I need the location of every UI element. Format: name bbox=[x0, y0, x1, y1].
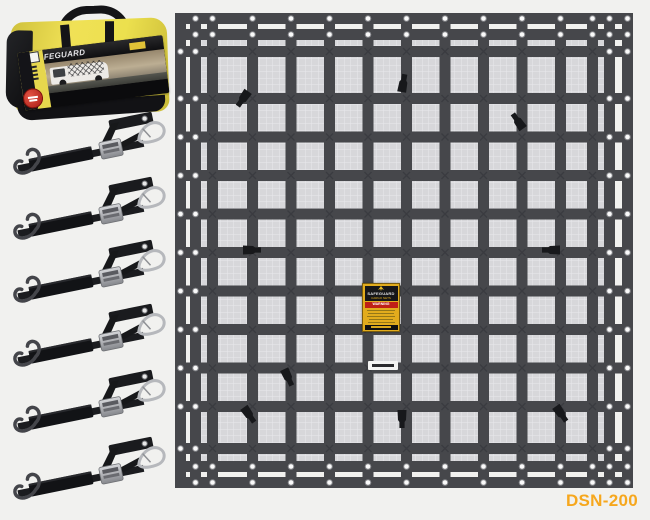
cargo-net-graphic bbox=[175, 13, 633, 488]
net-warning-label: SAFEGUARD CARGO NETS WARNING bbox=[362, 283, 400, 332]
cargo-net: SAFEGUARD CARGO NETS WARNING bbox=[175, 13, 633, 488]
product-image: SAFEGUARD bbox=[0, 0, 650, 520]
net-label-subtitle: CARGO NETS bbox=[371, 297, 391, 300]
bag-label-chip bbox=[129, 41, 146, 50]
net-label-fine-print bbox=[365, 309, 398, 324]
net-label-logo: SAFEGUARD CARGO NETS bbox=[365, 286, 398, 301]
carry-bag-photo: SAFEGUARD bbox=[4, 3, 172, 121]
net-label-warning: WARNING bbox=[365, 302, 398, 308]
net-label-footer bbox=[365, 325, 398, 330]
net-trademark-label bbox=[368, 361, 398, 370]
product-code: DSN-200 bbox=[566, 491, 638, 511]
